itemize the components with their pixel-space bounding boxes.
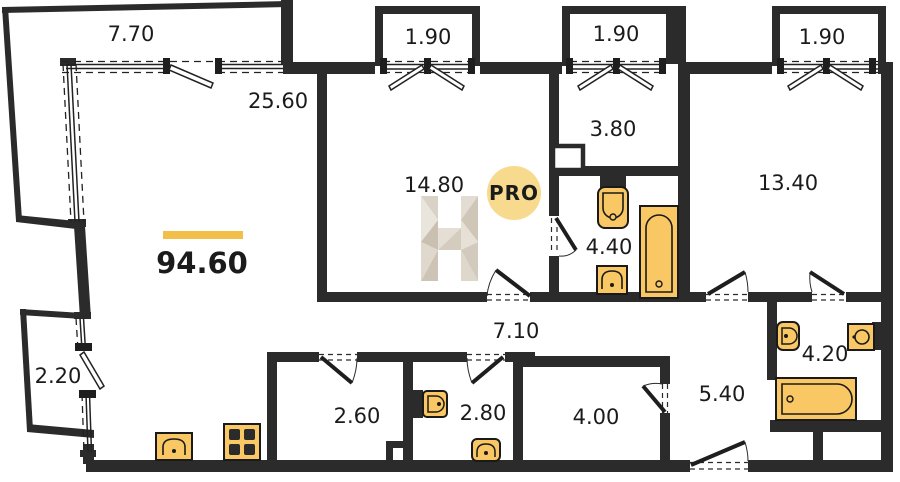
pro-badge-label: PRO [489, 181, 539, 205]
label-hall-top: 3.80 [590, 117, 637, 141]
vent-duct [553, 146, 583, 170]
toilet-icon [767, 322, 799, 350]
label-bathroom-right: 4.20 [802, 342, 849, 366]
total-area-block: 94.60 [156, 231, 248, 280]
bathtub-icon [640, 206, 678, 298]
label-balcony-2: 1.90 [593, 22, 640, 46]
floorplan-drawing: PRO [0, 0, 900, 482]
label-hall-right: 5.40 [699, 382, 746, 406]
total-area-accent-bar [163, 231, 243, 239]
bathtub-icon [776, 378, 856, 420]
label-room-mid: 14.80 [404, 173, 464, 197]
toilet-icon [598, 176, 628, 228]
label-wc: 2.80 [460, 401, 507, 425]
kitchen-sink-icon [156, 433, 192, 460]
label-storage-2: 4.00 [573, 405, 620, 429]
toilet-icon [472, 439, 500, 461]
label-balcony-3: 1.90 [799, 25, 846, 49]
label-balcony-top-left: 7.70 [108, 22, 155, 46]
label-storage-1: 2.60 [334, 404, 381, 428]
label-bedroom-right: 13.40 [758, 171, 818, 195]
pro-badge: PRO [487, 166, 541, 220]
label-bathroom-mid: 4.40 [586, 235, 633, 259]
label-corridor: 7.10 [493, 319, 540, 343]
stove-icon [224, 424, 260, 460]
sink-icon [597, 266, 627, 294]
sink-icon [848, 324, 874, 350]
label-balcony-1: 1.90 [405, 25, 452, 49]
sink-icon [413, 390, 447, 418]
floorplan-page: PRO [0, 0, 900, 482]
label-balcony-bottom-left: 2.20 [35, 364, 82, 388]
label-living-area: 25.60 [248, 89, 308, 113]
total-area-label: 94.60 [156, 246, 248, 280]
